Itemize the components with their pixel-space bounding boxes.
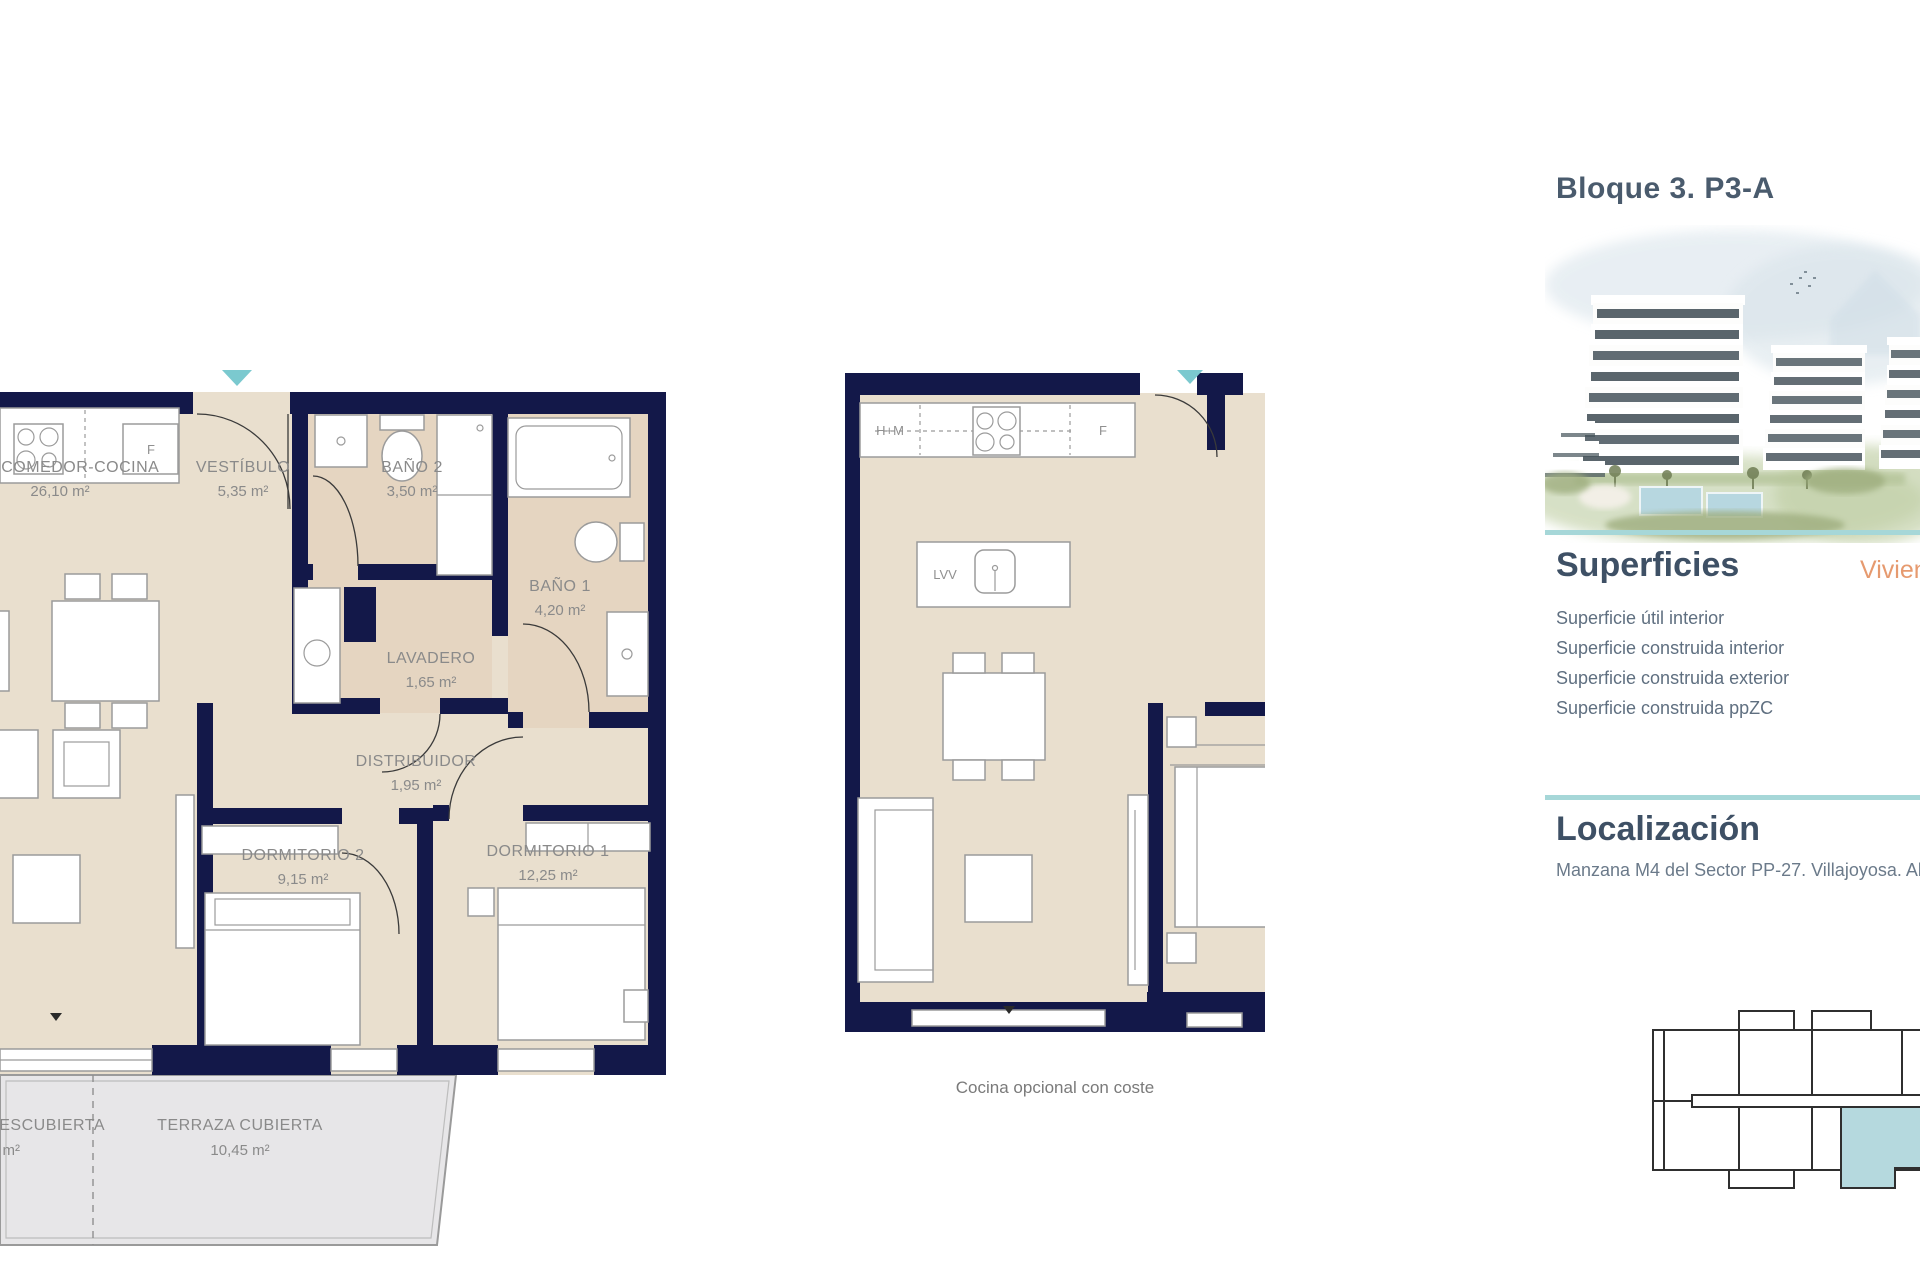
- optional-kitchen-floorplan: H+M F LVV: [845, 365, 1265, 1045]
- building-render: [1545, 225, 1920, 543]
- unit-type-label: Vivienda: [1860, 556, 1920, 585]
- room-label-vestibulo: VESTÍBULO: [196, 457, 290, 476]
- bathtub-icon: [508, 418, 630, 497]
- svg-text:10,45 m²: 10,45 m²: [210, 1142, 269, 1159]
- fridge-label: F: [1099, 423, 1107, 438]
- svg-text:3,50 m²: 3,50 m²: [387, 483, 438, 500]
- coffee-table: [13, 855, 80, 923]
- room-label-distribuidor: DISTRIBUIDOR: [356, 753, 477, 770]
- laundry-fixtures: [294, 588, 340, 703]
- room-label-dormitorio2: DORMITORIO 2: [241, 847, 364, 864]
- room-label-bano1: BAÑO 1: [529, 575, 591, 595]
- svg-text:1,65 m²: 1,65 m²: [406, 674, 457, 691]
- entrance-arrow-icon: [222, 370, 252, 386]
- window: [1187, 1013, 1242, 1027]
- keyplan-corridor: [1692, 1095, 1920, 1107]
- room-label-dormitorio1: DORMITORIO 1: [486, 843, 609, 860]
- fridge-label: F: [147, 442, 155, 457]
- address-text: Manzana M4 del Sector PP-27. Villajoyosa…: [1556, 860, 1920, 881]
- optional-kitchen-caption: Cocina opcional con coste: [845, 1078, 1265, 1098]
- svg-text:0 m²: 0 m²: [0, 1142, 20, 1159]
- building-main: [1545, 295, 1745, 477]
- plan-sheet: F: [0, 0, 1920, 1280]
- room-label-bano2: BAÑO 2: [381, 456, 443, 476]
- svg-text:1,95 m²: 1,95 m²: [391, 777, 442, 794]
- superficie-row: Superficie construida interior: [1556, 633, 1789, 663]
- superficies-heading: Superficies: [1556, 546, 1739, 585]
- bed: [1175, 767, 1265, 927]
- superficie-row: Superficie construida exterior: [1556, 663, 1789, 693]
- terrace: [0, 1075, 456, 1245]
- main-floorplan: F: [0, 368, 670, 1258]
- room-label-terraza-cubierta: TERRAZA CUBIERTA: [157, 1117, 323, 1134]
- svg-text:26,10 m²: 26,10 m²: [30, 483, 89, 500]
- svg-text:5,35 m²: 5,35 m²: [218, 483, 269, 500]
- washbasin-icon: [607, 612, 648, 696]
- svg-text:9,15 m²: 9,15 m²: [278, 871, 329, 888]
- keyplan-highlighted-unit: [1841, 1107, 1920, 1188]
- tv-unit: [176, 795, 194, 948]
- room-label-lavadero: LAVADERO: [387, 650, 476, 667]
- key-plan: [1630, 1005, 1920, 1195]
- sink-icon: [315, 415, 367, 467]
- superficie-row: Superficie útil interior: [1556, 603, 1789, 633]
- kitchen-counter: H+M F: [860, 403, 1135, 457]
- superficies-rows: Superficie útil interior Superficie cons…: [1556, 603, 1789, 723]
- page-title: Bloque 3. P3-A: [1556, 172, 1775, 206]
- sofa: [858, 798, 933, 982]
- superficies-rule: [1545, 530, 1920, 535]
- bed: [498, 888, 645, 1040]
- toilet-icon: [575, 522, 617, 562]
- room-label-terraza-descubierta: TERRAZA DESCUBIERTA: [0, 1117, 105, 1134]
- bed: [205, 893, 360, 1045]
- localizacion-heading: Localización: [1556, 810, 1760, 849]
- dishwasher-label: LVV: [933, 567, 957, 582]
- building-second: [1763, 345, 1867, 470]
- tv-unit: [1128, 795, 1148, 985]
- superficie-row: Superficie construida ppZC: [1556, 693, 1789, 723]
- svg-text:12,25 m²: 12,25 m²: [518, 867, 577, 884]
- hm-label: H+M: [876, 423, 904, 438]
- kitchen-island: LVV: [917, 542, 1070, 607]
- room-label-salon: SALÓN-COMEDOR-COCINA: [0, 457, 159, 476]
- localizacion-rule: [1545, 795, 1920, 800]
- coffee-table: [965, 855, 1032, 922]
- svg-text:4,20 m²: 4,20 m²: [535, 602, 586, 619]
